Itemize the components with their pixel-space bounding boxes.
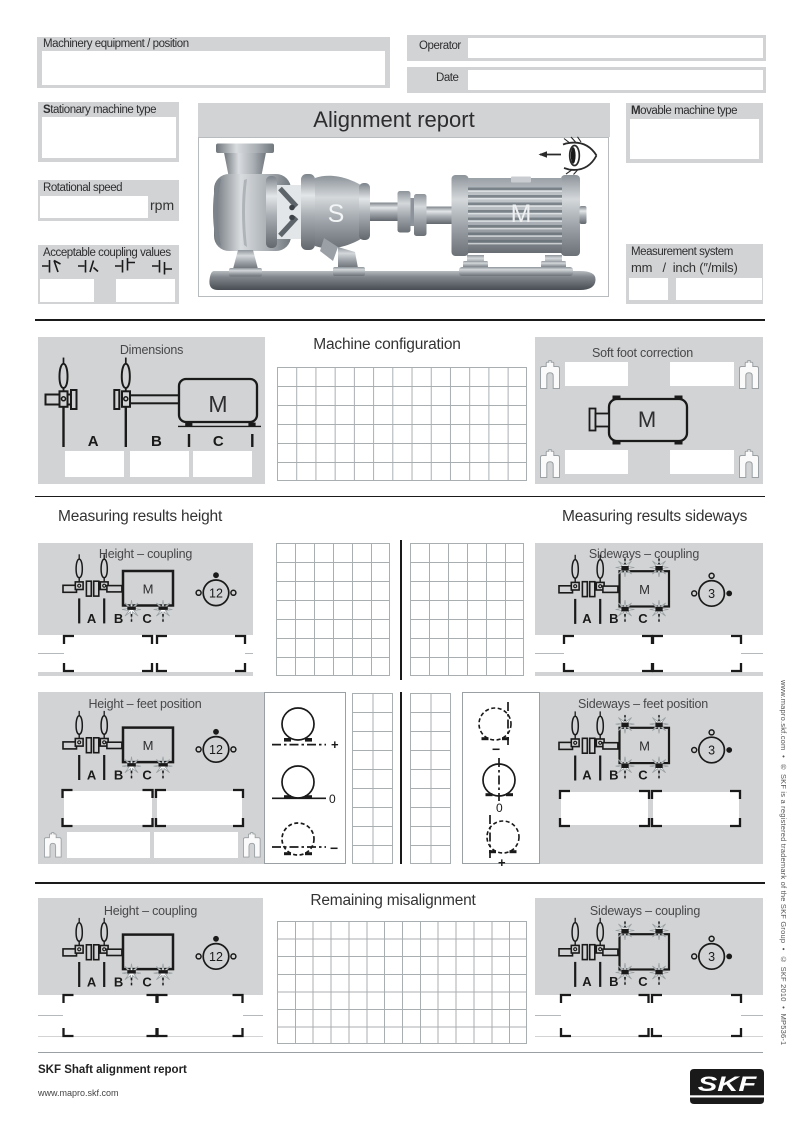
svg-text:M: M xyxy=(143,582,154,597)
svg-text:C: C xyxy=(213,433,224,450)
svg-text:+: + xyxy=(331,737,339,752)
svg-text:M: M xyxy=(638,407,656,432)
svg-text:B: B xyxy=(151,433,162,450)
svg-text:0: 0 xyxy=(329,792,336,806)
svg-text:M: M xyxy=(143,738,154,753)
svg-text:M: M xyxy=(208,391,227,417)
svg-text:+: + xyxy=(498,855,506,870)
svg-text:A: A xyxy=(88,433,99,450)
svg-text:0: 0 xyxy=(496,801,503,815)
svg-text:−: − xyxy=(492,741,500,757)
svg-text:M: M xyxy=(511,200,532,228)
svg-text:M: M xyxy=(639,739,650,754)
svg-text:S: S xyxy=(328,200,345,228)
svg-text:M: M xyxy=(639,582,650,597)
svg-text:−: − xyxy=(330,840,338,856)
svg-text:SKF: SKF xyxy=(698,1073,758,1096)
